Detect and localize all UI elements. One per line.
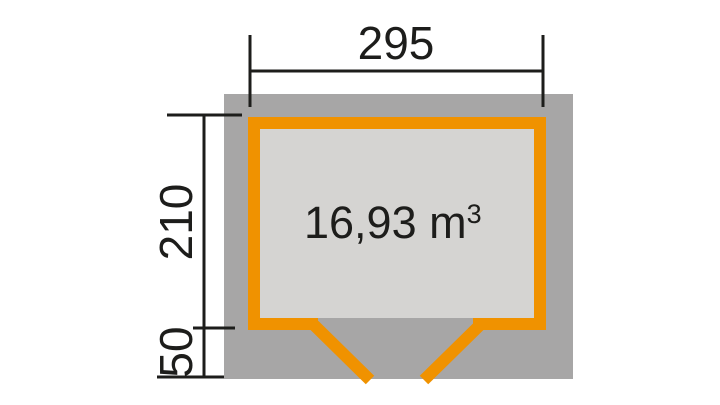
width-dimension-label: 295: [358, 17, 435, 69]
volume-label: 16,93 m3: [304, 197, 482, 248]
shed-floor-plan-diagram: 295 210 50 16,93 m3: [0, 0, 720, 405]
volume-exponent: 3: [467, 199, 482, 229]
floor-plan-canvas: 295 210 50 16,93 m3: [0, 0, 720, 405]
overhang-dimension-label: 50: [150, 326, 202, 377]
depth-dimension-label: 210: [150, 184, 202, 261]
volume-value: 16,93 m: [304, 197, 467, 248]
